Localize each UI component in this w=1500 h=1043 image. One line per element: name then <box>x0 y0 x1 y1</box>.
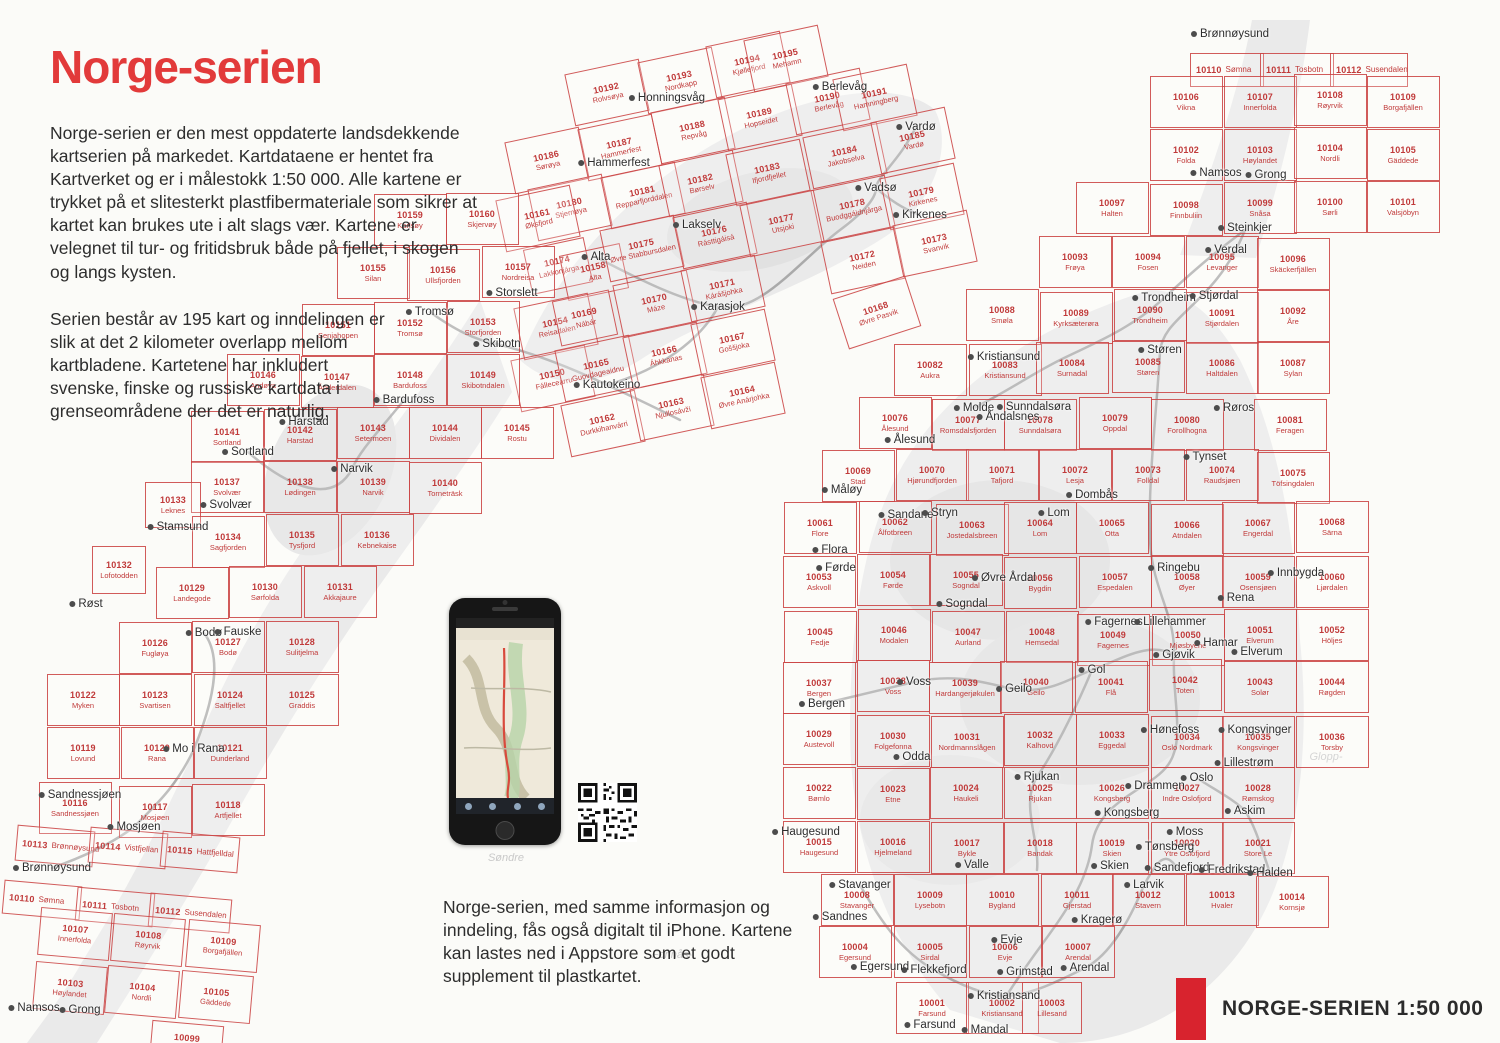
city-label: Karasjok <box>691 301 745 313</box>
city-label: Lillestrøm <box>1215 757 1274 769</box>
intro-column: Norge-serien Norge-serien er den mest op… <box>50 40 490 447</box>
city-dot-icon <box>901 967 907 973</box>
city-label: Vardø <box>896 121 935 133</box>
city-dot-icon <box>816 565 822 571</box>
city-dot-icon <box>60 1007 66 1013</box>
city-dot-icon <box>822 487 828 493</box>
city-label: Honningsvåg <box>629 92 705 104</box>
city-dot-icon <box>1066 492 1072 498</box>
city-label: Namsos <box>8 1002 59 1014</box>
city-label: Svolvær <box>200 499 251 511</box>
city-dot-icon <box>1191 31 1197 37</box>
city-label: Mandal <box>962 1024 1009 1036</box>
city-dot-icon <box>215 629 221 635</box>
city-label: Sortland <box>222 446 274 458</box>
page-title: Norge-serien <box>50 40 490 94</box>
city-dot-icon <box>186 630 192 636</box>
menu-icon <box>538 803 545 810</box>
city-dot-icon <box>629 95 635 101</box>
city-label: Grimstad <box>997 966 1053 978</box>
city-label: Halden <box>1247 867 1292 879</box>
city-dot-icon <box>1124 882 1130 888</box>
city-dot-icon <box>829 882 835 888</box>
city-dot-icon <box>855 185 861 191</box>
city-dot-icon <box>897 679 903 685</box>
city-label: Gjøvik <box>1153 649 1195 661</box>
city-dot-icon <box>582 254 588 260</box>
city-dot-icon <box>954 405 960 411</box>
city-label: Berlevåg <box>813 81 867 93</box>
series-footer: NORGE-SERIEN 1:50 000 <box>1176 978 1483 1040</box>
city-label: Røst <box>69 598 102 610</box>
city-label: Åndalsnes <box>977 411 1040 423</box>
city-dot-icon <box>968 354 974 360</box>
city-label: Verdal <box>1205 244 1247 256</box>
city-dot-icon <box>936 601 942 607</box>
city-dot-icon <box>1184 454 1190 460</box>
city-dot-icon <box>69 601 75 607</box>
city-label: Dombås <box>1066 489 1118 501</box>
city-label: Haugesund <box>772 826 840 838</box>
city-dot-icon <box>1246 172 1252 178</box>
city-label: Voss <box>897 676 931 688</box>
red-bar-icon <box>1176 978 1206 1040</box>
city-label: Mosjøen <box>107 821 160 833</box>
city-dot-icon <box>1061 965 1067 971</box>
city-label: Odda <box>893 751 930 763</box>
city-dot-icon <box>163 746 169 752</box>
iphone-paragraph: Norge-serien, med samme informasjon og i… <box>443 896 815 988</box>
city-dot-icon <box>997 969 1003 975</box>
city-dot-icon <box>896 124 902 130</box>
city-dot-icon <box>922 510 928 516</box>
city-label: Flora <box>812 544 847 556</box>
city-dot-icon <box>997 404 1003 410</box>
city-label: Vadsø <box>855 182 896 194</box>
city-label: Kongsberg <box>1095 807 1160 819</box>
phone-speaker-icon <box>492 607 518 611</box>
phone-screen-map <box>456 618 554 814</box>
city-label: Mo i Rana <box>163 743 224 755</box>
city-dot-icon <box>107 824 113 830</box>
city-label: Lom <box>1038 507 1069 519</box>
city-dot-icon <box>1218 225 1224 231</box>
city-label: Egersund <box>851 961 909 973</box>
city-label: Rjukan <box>1015 771 1060 783</box>
city-dot-icon <box>13 865 19 871</box>
city-label: Kautokeino <box>574 379 641 391</box>
city-dot-icon <box>1199 867 1205 873</box>
city-label: Alta <box>582 251 611 263</box>
city-dot-icon <box>1225 808 1231 814</box>
phone-app-toolbar <box>456 798 554 814</box>
city-label: Steinkjer <box>1218 222 1272 234</box>
search-icon <box>514 803 521 810</box>
city-dot-icon <box>812 547 818 553</box>
city-dot-icon <box>813 84 819 90</box>
city-dot-icon <box>1190 170 1196 176</box>
city-dot-icon <box>972 575 978 581</box>
city-label: Kristiansund <box>968 351 1040 363</box>
city-label: Hønefoss <box>1141 724 1199 736</box>
city-label: Rena <box>1218 592 1255 604</box>
city-dot-icon <box>1134 619 1140 625</box>
city-dot-icon <box>1205 247 1211 253</box>
city-dot-icon <box>1231 649 1237 655</box>
city-dot-icon <box>1194 640 1200 646</box>
city-label: Askim <box>1225 805 1265 817</box>
city-label: Måløy <box>822 484 862 496</box>
city-dot-icon <box>1167 829 1173 835</box>
city-dot-icon <box>996 686 1002 692</box>
phone-camera-icon <box>503 600 508 605</box>
city-dot-icon <box>148 524 154 530</box>
city-label: Tønsberg <box>1136 841 1194 853</box>
city-label: Grong <box>60 1004 101 1016</box>
city-dot-icon <box>1190 293 1196 299</box>
city-dot-icon <box>1215 760 1221 766</box>
city-label: Fauske <box>215 626 262 638</box>
city-dot-icon <box>955 862 961 868</box>
city-label: Storslett <box>486 287 537 299</box>
city-label: Brønnøysund <box>1191 28 1269 40</box>
city-label: Gol <box>1079 664 1106 676</box>
city-label: Grong <box>1246 169 1287 181</box>
city-label: Kirkenes <box>893 209 947 221</box>
city-label: Evje <box>991 934 1022 946</box>
city-label: Moss <box>1167 826 1203 838</box>
city-label: Narvik <box>331 463 373 475</box>
city-dot-icon <box>578 160 584 166</box>
city-dot-icon <box>1085 619 1091 625</box>
locate-icon <box>465 803 472 810</box>
city-dot-icon <box>893 754 899 760</box>
city-label: Kristiansand <box>968 990 1040 1002</box>
intro-paragraph-2: Serien består av 195 kart og inndelingen… <box>50 308 400 423</box>
city-label: Støren <box>1138 344 1182 356</box>
city-label: Stamsund <box>148 521 209 533</box>
city-label: Arendal <box>1061 962 1110 974</box>
city-dot-icon <box>1153 652 1159 658</box>
city-label: Sogndal <box>936 598 987 610</box>
city-label: Flekkefjord <box>901 964 966 976</box>
city-label: Kragerø <box>1072 914 1123 926</box>
city-dot-icon <box>1091 863 1097 869</box>
city-dot-icon <box>1145 865 1151 871</box>
city-label: Brønnøysund <box>13 862 91 874</box>
city-dot-icon <box>691 304 697 310</box>
city-label: Larvik <box>1124 879 1164 891</box>
city-label: Ålesund <box>885 434 936 446</box>
city-label: Bergen <box>799 698 845 710</box>
city-dot-icon <box>1247 870 1253 876</box>
city-dot-icon <box>893 212 899 218</box>
city-dot-icon <box>8 1005 14 1011</box>
iphone-home-button <box>496 821 515 840</box>
city-dot-icon <box>1141 727 1147 733</box>
city-label: Geilo <box>996 683 1032 695</box>
city-label: Hammerfest <box>578 157 650 169</box>
city-label: Valle <box>955 859 989 871</box>
city-label: Stryn <box>922 507 958 519</box>
city-dot-icon <box>1079 667 1085 673</box>
city-label: Ringebu <box>1148 562 1200 574</box>
city-dot-icon <box>574 382 580 388</box>
city-label: Lillehammer <box>1134 616 1206 628</box>
city-dot-icon <box>1132 295 1138 301</box>
iphone-mockup <box>449 598 561 845</box>
city-label: Skien <box>1091 860 1129 872</box>
city-dot-icon <box>878 512 884 518</box>
city-label: Førde <box>816 562 856 574</box>
city-dot-icon <box>1125 783 1131 789</box>
city-label: Oslo <box>1181 772 1214 784</box>
city-label: Sandnessjøen <box>39 789 122 801</box>
city-dot-icon <box>904 1022 910 1028</box>
city-dot-icon <box>1181 775 1187 781</box>
city-dot-icon <box>799 701 805 707</box>
city-label: Tynset <box>1184 451 1227 463</box>
city-label: Innbygda <box>1268 567 1324 579</box>
city-label: Stavanger <box>829 879 890 891</box>
city-dot-icon <box>851 964 857 970</box>
city-dot-icon <box>1138 347 1144 353</box>
city-dot-icon <box>331 466 337 472</box>
city-label: Namsos <box>1190 167 1241 179</box>
city-label: Farsund <box>904 1019 955 1031</box>
city-dot-icon <box>977 414 983 420</box>
city-label: Kongsvinger <box>1219 724 1292 736</box>
city-dot-icon <box>1214 405 1220 411</box>
city-dot-icon <box>673 222 679 228</box>
city-dot-icon <box>1136 844 1142 850</box>
city-dot-icon <box>1268 570 1274 576</box>
city-label: Elverum <box>1231 646 1282 658</box>
city-dot-icon <box>1038 510 1044 516</box>
city-dot-icon <box>222 449 228 455</box>
city-label: Røros <box>1214 402 1254 414</box>
city-label: Stjørdal <box>1190 290 1239 302</box>
footer-label: NORGE-SERIEN 1:50 000 <box>1222 997 1483 1021</box>
intro-paragraph-1: Norge-serien er den mest oppdaterte land… <box>50 122 482 284</box>
city-dot-icon <box>968 993 974 999</box>
catalog-page: SøndreFonnås-Glopp- 10192Rolvsøya10193No… <box>0 0 1500 1043</box>
city-dot-icon <box>962 1027 968 1033</box>
city-label: Øvre Årdal <box>972 572 1036 584</box>
city-label: Lakselv <box>673 219 721 231</box>
city-dot-icon <box>39 792 45 798</box>
city-label: Trondheim <box>1132 292 1196 304</box>
city-dot-icon <box>1219 727 1225 733</box>
city-label: Drammen <box>1125 780 1184 792</box>
city-label: Sandnes <box>813 911 867 923</box>
city-dot-icon <box>885 437 891 443</box>
city-dot-icon <box>1095 810 1101 816</box>
city-dot-icon <box>991 937 997 943</box>
qr-code <box>578 783 637 842</box>
city-dot-icon <box>200 502 206 508</box>
city-dot-icon <box>1015 774 1021 780</box>
city-dot-icon <box>772 829 778 835</box>
city-dot-icon <box>1218 595 1224 601</box>
city-dot-icon <box>1148 565 1154 571</box>
layers-icon <box>489 803 496 810</box>
city-dot-icon <box>1072 917 1078 923</box>
